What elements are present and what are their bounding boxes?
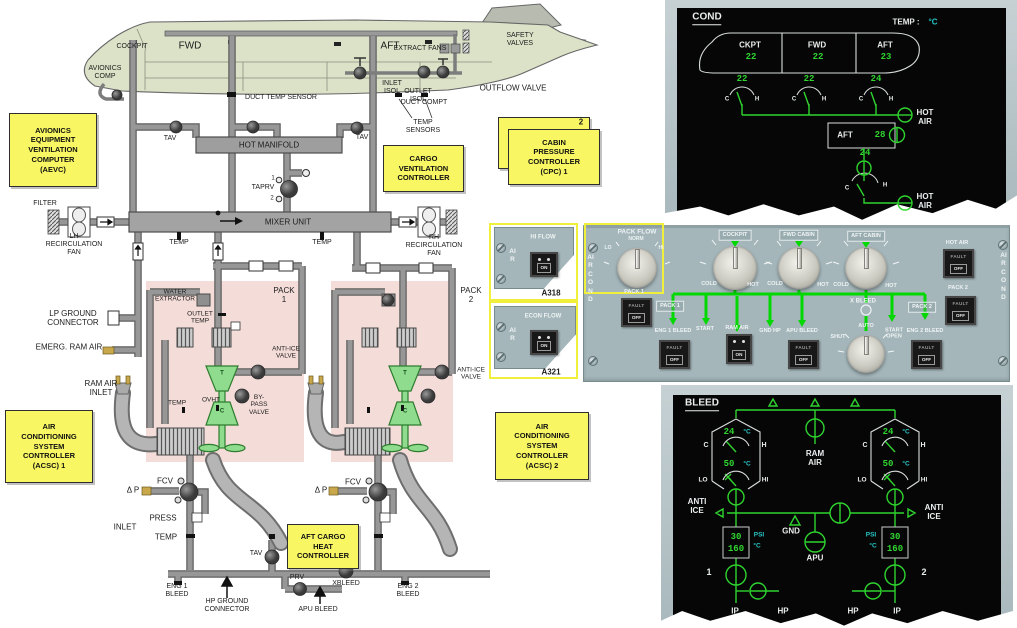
- green-arrow-icon: [731, 241, 739, 247]
- a318-label: A318: [541, 288, 560, 297]
- econ-flow-air-label: AIR: [508, 327, 517, 344]
- pack1-button[interactable]: FAULT OFF: [621, 298, 652, 327]
- gnd-hp-label: GND HP: [759, 328, 780, 334]
- label-tav-bottom: TAV: [250, 550, 263, 558]
- bleed-eng2-ip: IP: [893, 606, 901, 615]
- label-anti-ice-valve-1: ANTI-ICE VALVE: [272, 346, 300, 361]
- cond-gauge3-h: H: [889, 97, 893, 104]
- bleed-pack1-temp-unit: °C: [743, 428, 750, 435]
- pack-flow-label: PACK FLOW: [618, 228, 657, 235]
- box-cpc2-tag: 2: [579, 117, 583, 126]
- aircraft-silhouette: [84, 4, 597, 94]
- green-arrow-icon: [862, 242, 870, 248]
- turbine-2: T: [403, 371, 407, 378]
- cond-gauge2-c: C: [792, 97, 796, 104]
- bleed-eng1-ip: IP: [731, 606, 739, 615]
- compressor-2: C: [403, 409, 407, 416]
- aft-hot: HOT: [885, 283, 897, 289]
- label-safety-valves: SAFETY VALVES: [506, 32, 533, 48]
- label-temp-bleed: TEMP: [155, 532, 177, 541]
- cond-screen: [677, 8, 1006, 220]
- label-lp-ground: LP GROUND CONNECTOR: [47, 309, 98, 327]
- label-inlet: INLET: [114, 522, 137, 531]
- bleed-eng1-psi-label: PSI: [754, 531, 764, 538]
- label-taprv-1: 1: [271, 176, 274, 183]
- box-cpc1: CABIN PRESSURE CONTROLLER (CPC) 1: [508, 129, 600, 185]
- hot-air-off: OFF: [950, 264, 967, 274]
- bleed-eng2-temp-label: °C: [869, 542, 876, 549]
- hi-flow-on-label: ON: [537, 263, 552, 273]
- fwd-cabin-temp-knob[interactable]: [778, 247, 820, 289]
- bleed-eng2-num: 2: [921, 567, 926, 577]
- cond-title: COND: [692, 11, 721, 25]
- cond-cabin-temp-ckpt: 22: [746, 52, 757, 62]
- eng2-bleed-label: ENG 2 BLEED: [907, 328, 944, 334]
- bleed-gnd-label: GND: [782, 526, 800, 535]
- screw: [496, 352, 506, 362]
- screw: [496, 322, 506, 332]
- cond-aft-cargo-duct: 24: [860, 148, 871, 158]
- cond-ecam-display: [665, 0, 1017, 222]
- hot-air-fault: FAULT: [951, 255, 967, 260]
- screw: [588, 356, 598, 366]
- label-tav-left: TAV: [164, 135, 177, 143]
- label-tav-right: TAV: [356, 134, 369, 142]
- eng2-fault: FAULT: [919, 346, 935, 351]
- fwd-cold: COLD: [767, 281, 783, 287]
- label-cockpit: COCKPIT: [116, 43, 147, 51]
- label-dp-2: Δ P: [315, 485, 327, 494]
- cond-duct-temp-ckpt: 22: [737, 74, 748, 84]
- label-press: PRESS: [149, 513, 176, 522]
- label-inlet-isol: INLET ISOL: [382, 80, 402, 96]
- label-fcv-2: FCV: [345, 477, 361, 486]
- label-taprv-2: 2: [270, 196, 273, 203]
- cond-zone-aft: AFT: [877, 40, 893, 49]
- panel-side-left: AIR COND: [586, 254, 595, 354]
- label-water-extractor: WATER EXTRACTOR: [155, 289, 195, 304]
- apu-fault: FAULT: [796, 346, 812, 351]
- cond-temp-label: TEMP :: [893, 17, 920, 26]
- cockpit-hot: HOT: [747, 282, 759, 288]
- label-temp-pack: TEMP: [168, 399, 186, 406]
- bleed-anti-ice-left: ANTI ICE: [688, 497, 707, 515]
- pack1-button-label: PACK 1: [624, 289, 644, 295]
- pack2-button-label: PACK 2: [948, 285, 968, 291]
- label-fwd: FWD: [179, 40, 202, 52]
- label-prv: PRV: [290, 574, 304, 582]
- label-outlet-temp: OUTLET TEMP: [187, 311, 213, 326]
- pack2-off: OFF: [952, 311, 969, 321]
- eng2-bleed-button[interactable]: FAULT OFF: [911, 340, 942, 369]
- label-bypass-valve: BY- PASS VALVE: [249, 394, 269, 416]
- pack-flow-hi: HI: [659, 246, 664, 252]
- pack2-fault: FAULT: [953, 302, 969, 307]
- screw: [496, 274, 506, 284]
- xbleed-knob[interactable]: [847, 335, 885, 373]
- label-eng2-bleed: ENG 2 BLEED: [397, 583, 420, 599]
- bleed-pack1-hi: HI: [762, 476, 769, 483]
- label-emerg-ram-air: EMERG. RAM AIR: [36, 342, 103, 351]
- bleed-pack2-h: H: [920, 442, 925, 450]
- box-acsc2: AIR CONDITIONING SYSTEM CONTROLLER (ACSC…: [495, 412, 589, 480]
- label-temp-left: TEMP: [169, 239, 188, 247]
- xbleed-start-open: START OPEN: [885, 328, 903, 341]
- label-temp-right: TEMP: [312, 239, 331, 247]
- cond-aft-cargo-hot-air: 28: [875, 130, 886, 140]
- label-anti-ice-valve-2: ANTI-ICE VALVE: [457, 367, 485, 382]
- bleed-pack2-lo: LO: [857, 476, 866, 483]
- ram-air-on: ON: [732, 350, 747, 360]
- label-pack2: PACK 2: [460, 286, 481, 304]
- bleed-pack2-temp: 24: [883, 427, 894, 437]
- cond-gauge4-c: C: [845, 186, 849, 193]
- eng1-fault: FAULT: [667, 346, 683, 351]
- label-eng1-bleed: ENG 1 BLEED: [166, 583, 189, 599]
- cond-gauge2-h: H: [822, 97, 826, 104]
- turbine-1: T: [220, 371, 224, 378]
- xbleed-auto: AUTO: [858, 323, 873, 329]
- box-acsc1: AIR CONDITIONING SYSTEM CONTROLLER (ACSC…: [5, 410, 93, 483]
- bleed-pack1-h: H: [761, 442, 766, 450]
- cond-hot-air-2: HOT AIR: [917, 192, 934, 210]
- hot-air-button[interactable]: FAULT OFF: [943, 249, 974, 278]
- label-hp-ground: HP GROUND CONNECTOR: [205, 598, 250, 614]
- bleed-eng2-psi: 30: [890, 532, 901, 542]
- label-filter: FILTER: [33, 200, 57, 208]
- hi-flow-on-button[interactable]: ON: [530, 252, 558, 277]
- bleed-pack1-lo: LO: [698, 476, 707, 483]
- bleed-eng1-temp-label: °C: [753, 542, 760, 549]
- pack2-tag: PACK 2: [908, 302, 936, 313]
- apu-bleed-label: APU BLEED: [786, 328, 818, 334]
- screw: [998, 240, 1008, 250]
- screenshot-root: COCKPIT FWD AFT AVIONICS COMP EXTRACT FA…: [0, 0, 1017, 628]
- cond-aft-cargo-label: AFT: [837, 130, 853, 139]
- pack1-fault: FAULT: [629, 304, 645, 309]
- hi-flow-air-label: AIR: [508, 248, 517, 265]
- label-avionics-comp: AVIONICS COMP: [89, 65, 122, 81]
- ram-air-label: RAM AIR: [725, 325, 748, 331]
- bleed-eng2-psi-label: PSI: [866, 531, 876, 538]
- label-lh-recirc-fan: LH RECIRCULATION FAN: [46, 233, 103, 257]
- bleed-eng1-psi: 30: [731, 532, 742, 542]
- pack1-tag: PACK 1: [656, 301, 684, 312]
- ram-air-button[interactable]: ON: [726, 334, 752, 364]
- cond-hot-air-1: HOT AIR: [917, 108, 934, 126]
- screw: [998, 356, 1008, 366]
- label-duct-compt: DUCT COMPT: [401, 99, 448, 107]
- label-temp-sensors: TEMP SENSORS: [406, 119, 440, 135]
- bleed-eng2-temp: 160: [887, 544, 903, 554]
- econ-flow-label: ECON FLOW: [525, 314, 562, 321]
- apu-bleed-button[interactable]: FAULT OFF: [788, 340, 819, 369]
- cond-zone-fwd: FWD: [808, 40, 826, 49]
- cond-temp-unit: °C: [929, 17, 938, 26]
- eng1-bleed-label: ENG 1 BLEED: [655, 328, 692, 334]
- bleed-screen: [673, 395, 1001, 628]
- screw: [496, 243, 506, 253]
- label-taprv: TAPRV: [252, 184, 275, 192]
- bleed-pack2-c: C: [862, 442, 867, 450]
- start-label: START: [696, 326, 714, 332]
- bleed-eng1-num: 1: [706, 567, 711, 577]
- box-cargo-vent-controller: CARGO VENTILATION CONTROLLER: [383, 145, 464, 192]
- fwd-cabin-knob-label: FWD CABIN: [779, 230, 818, 241]
- bleed-ecam-display: [661, 385, 1013, 628]
- pack-flow-lo: LO: [605, 246, 612, 252]
- hi-flow-label: HI FLOW: [530, 235, 555, 242]
- label-mixer-unit: MIXER UNIT: [265, 217, 311, 226]
- label-outflow-valve: OUTFLOW VALVE: [480, 83, 547, 92]
- eng1-off: OFF: [666, 355, 683, 365]
- bleed-pack2-press: 50: [883, 459, 894, 469]
- bleed-eng2-hp: HP: [847, 606, 858, 615]
- mixer-unit: [129, 211, 391, 232]
- bleed-pack2-hi: HI: [921, 476, 928, 483]
- bleed-pack1-c: C: [703, 442, 708, 450]
- bleed-apu-label: APU: [807, 553, 824, 562]
- cond-cabin-temp-aft: 23: [881, 52, 892, 62]
- xbleed-shut: SHUT: [831, 334, 846, 340]
- label-duct-temp-sensor: DUCT TEMP SENSOR: [245, 94, 317, 102]
- cond-gauge1-c: C: [725, 97, 729, 104]
- label-pack1: PACK 1: [273, 286, 294, 304]
- bleed-anti-ice-right: ANTI ICE: [925, 503, 944, 521]
- panel-side-right: AIR COND: [999, 252, 1008, 352]
- screw: [588, 243, 598, 253]
- eng2-off: OFF: [918, 355, 935, 365]
- bleed-ram-air-label: RAM AIR: [806, 449, 824, 467]
- label-hot-manifold: HOT MANIFOLD: [239, 140, 299, 149]
- label-dp-1: Δ P: [127, 485, 139, 494]
- hot-air-label: HOT AIR: [946, 240, 968, 246]
- cond-duct-temp-fwd: 22: [804, 74, 815, 84]
- bleed-pack1-press: 50: [724, 459, 735, 469]
- cockpit-cold: COLD: [701, 281, 717, 287]
- fwd-hot: HOT: [817, 282, 829, 288]
- aft-cabin-knob-label: AFT CABIN: [847, 231, 885, 242]
- pack-flow-norm: NORM: [628, 237, 643, 243]
- cond-zone-ckpt: CKPT: [739, 40, 761, 49]
- pack-flow-knob[interactable]: [617, 248, 657, 288]
- label-fcv-1: FCV: [157, 476, 173, 485]
- label-xbleed: XBLEED: [332, 580, 360, 588]
- compressor-1: C: [220, 409, 224, 416]
- label-extract-fans: EXTRACT FANS: [394, 45, 447, 53]
- cockpit-knob-label: COCKPIT: [719, 230, 752, 241]
- bleed-title: BLEED: [685, 397, 719, 411]
- cond-cabin-temp-fwd: 22: [813, 52, 824, 62]
- cond-gauge3-c: C: [859, 97, 863, 104]
- cond-gauge1-h: H: [755, 97, 759, 104]
- econ-flow-on-button[interactable]: ON: [530, 330, 558, 355]
- label-ovht: OVHT: [202, 396, 220, 403]
- label-rh-recirc-fan: RH RECIRCULATION FAN: [406, 234, 463, 258]
- cond-gauge4-h: H: [883, 183, 887, 190]
- econ-flow-on-label: ON: [537, 341, 552, 351]
- apu-off: OFF: [795, 355, 812, 365]
- label-ram-air-inlet: RAM AIR INLET: [85, 379, 118, 397]
- a321-label: A321: [541, 367, 560, 376]
- bleed-eng1-temp: 160: [728, 544, 744, 554]
- bleed-pack1-press-unit: °C: [743, 460, 750, 467]
- xbleed-label: X BLEED: [850, 299, 876, 306]
- bleed-eng1-hp: HP: [777, 606, 788, 615]
- aft-cabin-temp-knob[interactable]: [845, 247, 887, 289]
- eng1-bleed-button[interactable]: FAULT OFF: [659, 340, 690, 369]
- pack2-button[interactable]: FAULT OFF: [945, 296, 976, 325]
- box-aft-cargo-heat: AFT CARGO HEAT CONTROLLER: [287, 524, 359, 569]
- bleed-pack1-temp: 24: [724, 427, 735, 437]
- box-aevc: AVIONICS EQUIPMENT VENTILATION COMPUTER …: [9, 113, 97, 187]
- bleed-pack2-press-unit: °C: [902, 460, 909, 467]
- bleed-pack2-temp-unit: °C: [902, 428, 909, 435]
- cond-duct-temp-aft: 24: [871, 74, 882, 84]
- pack1-off: OFF: [628, 313, 645, 323]
- label-apu-bleed: APU BLEED: [298, 606, 337, 614]
- aft-cold: COLD: [833, 282, 849, 288]
- green-arrow-icon: [795, 241, 803, 247]
